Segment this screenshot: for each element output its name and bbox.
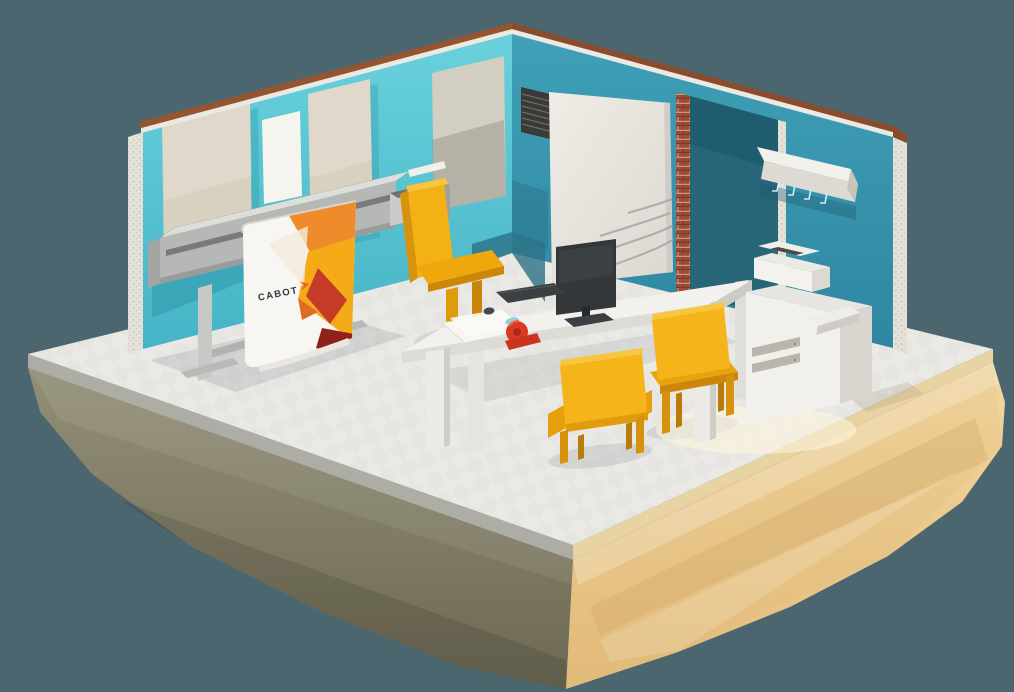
scene-canvas: CABOT [0,0,1014,692]
left-wall-end-cap [128,132,143,353]
right-wall-end-cap [893,137,907,354]
chair-backrest [652,308,730,380]
doorway-brick-jamb [676,92,690,298]
poster [262,111,302,204]
desk-leg-front-left [426,349,444,450]
cabot-banner: CABOT [242,199,358,372]
plotter-end-cap [148,238,160,288]
isometric-office-illustration: CABOT [0,0,1014,692]
